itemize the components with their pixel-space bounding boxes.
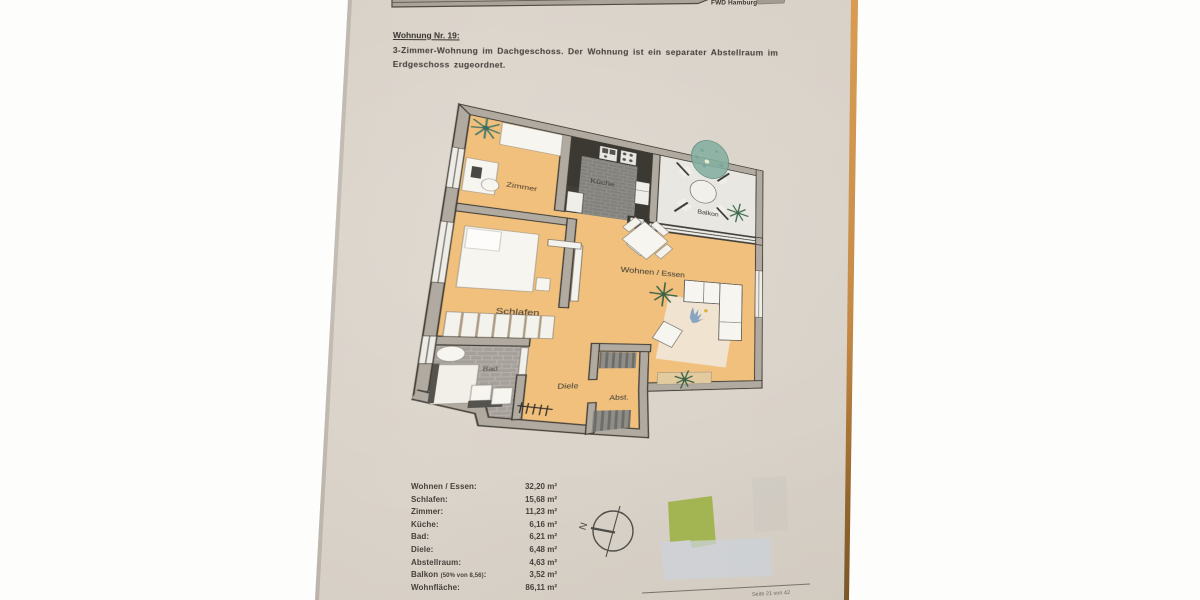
svg-text:Abst.: Abst. xyxy=(609,394,629,402)
svg-text:Schlafen: Schlafen xyxy=(495,306,540,318)
svg-text:Seite 21 von 42: Seite 21 von 42 xyxy=(752,590,790,598)
svg-text:Bad: Bad xyxy=(482,365,498,372)
svg-text:FWD Hamburg: FWD Hamburg xyxy=(711,0,757,7)
svg-text:N: N xyxy=(578,521,591,531)
svg-text:Diele: Diele xyxy=(557,382,579,390)
